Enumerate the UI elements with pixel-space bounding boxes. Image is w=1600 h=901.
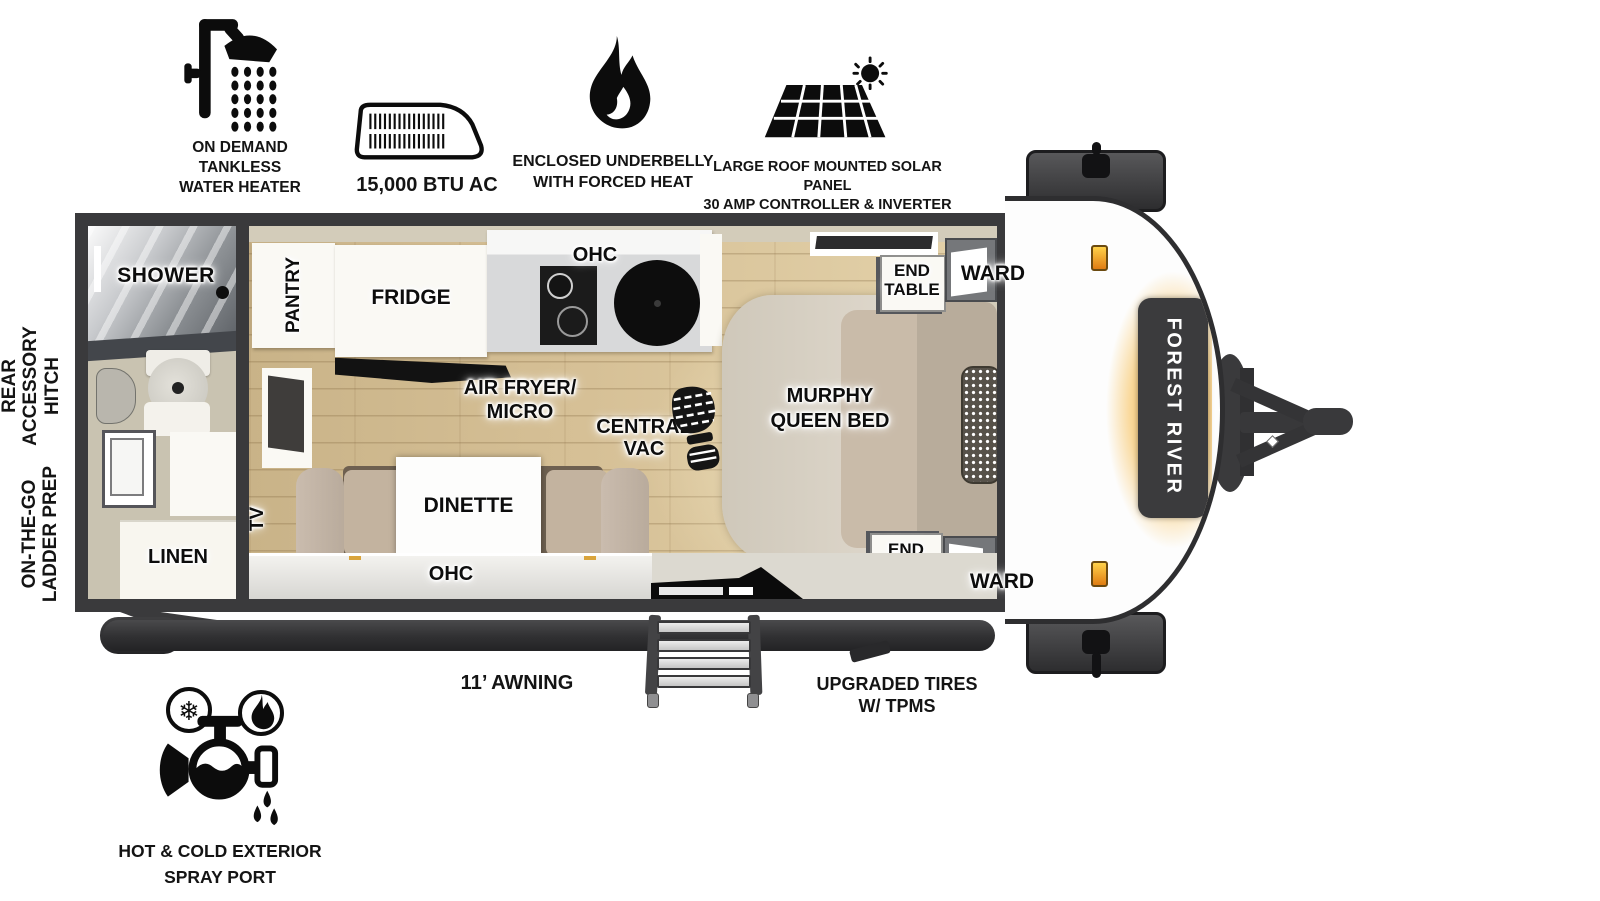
ac-caption: 15,000 BTU AC	[327, 172, 527, 198]
water-heater-caption: ON DEMAND TANKLESS WATER HEATER	[140, 138, 340, 198]
bed-window-pane	[815, 236, 933, 249]
rear-hitch-caption: REAR ACCESSORY HITCH	[0, 301, 67, 471]
end-table-top-label: END TABLE	[875, 262, 949, 299]
ac-unit-icon	[348, 100, 486, 166]
dinette-armrest	[296, 468, 344, 558]
step-foot	[647, 693, 659, 708]
tires-caption: UPGRADED TIRES W/ TPMS	[792, 674, 1002, 717]
ladder-prep-caption: ON-THE-GO LADDER PREP	[19, 454, 65, 614]
entry-steps	[645, 615, 765, 709]
brand-label: FOREST RIVER	[1162, 300, 1185, 514]
fridge-label: FRIDGE	[335, 286, 487, 310]
bath-window-pane	[110, 438, 144, 496]
toilet-flush-dot	[172, 382, 184, 394]
murphy-bed-label: MURPHY QUEEN BED	[750, 384, 910, 434]
spray-port-caption: HOT & COLD EXTERIOR SPRAY PORT	[105, 838, 335, 891]
bed-quilt-pad	[961, 366, 997, 484]
bath-window	[102, 430, 156, 508]
ohc-kitchen-label: OHC	[565, 244, 625, 267]
floorplan-diagram: ON DEMAND TANKLESS WATER HEATER 15,000 B…	[0, 0, 1600, 901]
shower-label: SHOWER	[96, 264, 236, 288]
step-tread	[657, 621, 751, 634]
bathroom: SHOWER LINEN	[88, 226, 236, 599]
kitchen-sink	[614, 260, 700, 346]
dinette-label: DINETTE	[396, 494, 541, 518]
counter-end-panel	[700, 234, 722, 346]
dinette-cushion	[546, 470, 608, 556]
shower-head-icon	[183, 16, 291, 134]
flame-icon	[578, 28, 652, 142]
wardrobe-top-label: WARD	[943, 262, 1043, 286]
wardrobe-bottom-label: WARD	[950, 570, 1054, 594]
hitch-coupler	[1303, 408, 1353, 435]
storage-knob	[1082, 154, 1110, 178]
sink-drain	[654, 300, 661, 307]
front-cap: FOREST RIVER	[1005, 196, 1225, 624]
burner	[547, 273, 573, 299]
step-tread	[657, 657, 751, 670]
storage-knob-stem	[1092, 652, 1101, 678]
awning-caption: 11’ AWNING	[437, 670, 597, 696]
cooktop	[540, 266, 597, 345]
solar-panel-icon	[763, 56, 889, 150]
trailer-floorplan: SHOWER LINEN PANTRY FRIDGE	[75, 213, 1010, 612]
bath-wall	[236, 226, 249, 599]
bath-sink-counter	[170, 432, 236, 516]
entry-door-threshold	[651, 567, 803, 599]
brand-badge: FOREST RIVER	[1138, 298, 1208, 518]
marker-light	[1091, 245, 1108, 271]
tv-niche	[262, 368, 312, 468]
dinette-armrest	[601, 468, 649, 558]
bath-door	[96, 368, 136, 424]
cabinet-hinge	[584, 556, 596, 560]
pantry-label: PANTRY	[283, 247, 305, 343]
tv-screen	[268, 375, 304, 452]
marker-light	[1091, 561, 1108, 587]
linen-label: LINEN	[120, 546, 236, 569]
step-foot	[747, 693, 759, 708]
step-tread	[657, 639, 751, 652]
ohc-dinette-label: OHC	[409, 563, 493, 586]
cabinet-hinge	[349, 556, 361, 560]
air-fryer-label: AIR FRYER/ MICRO	[440, 376, 600, 424]
tv-label: TV	[249, 497, 269, 541]
storage-knob-stem	[1092, 142, 1101, 155]
bed-window	[810, 232, 938, 256]
main-room: PANTRY FRIDGE OHC MURP	[249, 226, 997, 599]
burner	[557, 306, 588, 337]
spray-port-icon	[158, 712, 286, 832]
storage-knob	[1082, 630, 1110, 654]
step-tread	[657, 675, 751, 688]
